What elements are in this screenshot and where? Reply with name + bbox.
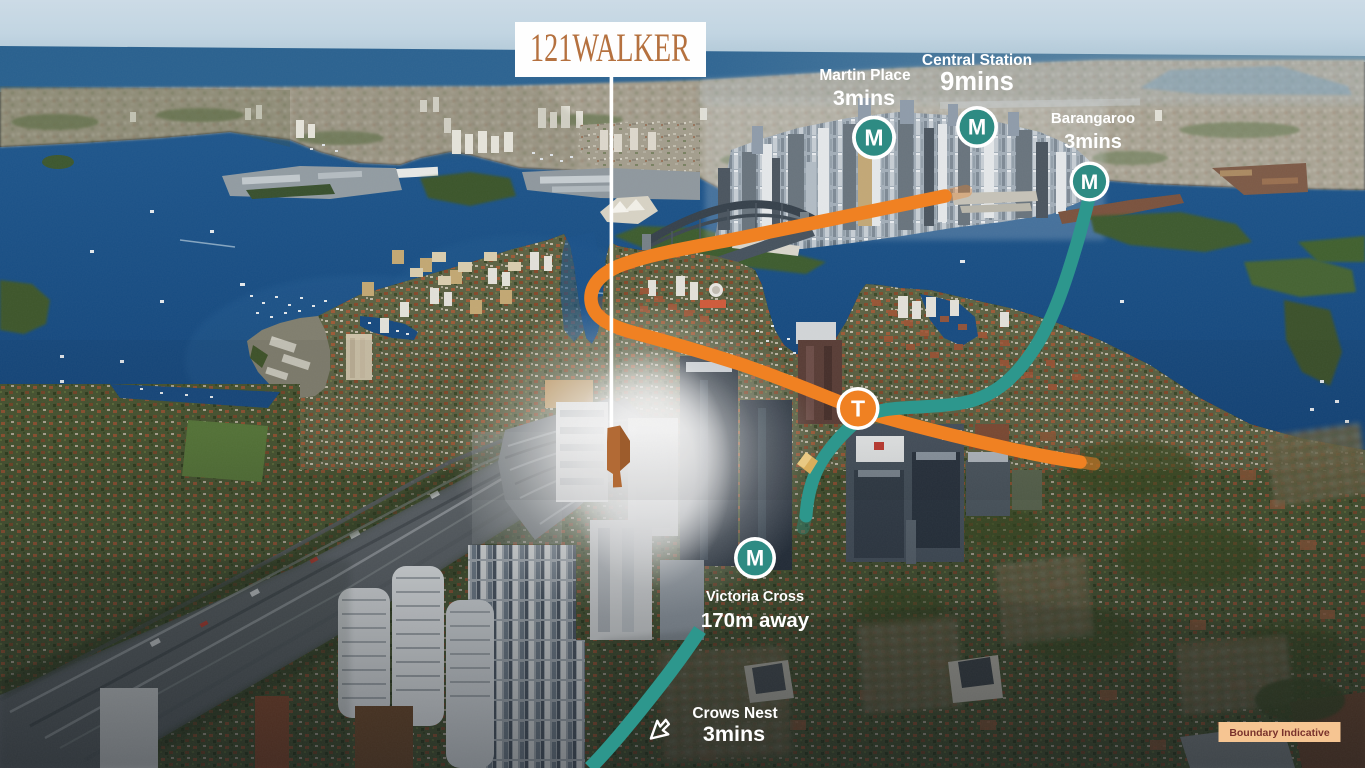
- svg-text:M: M: [746, 546, 764, 571]
- svg-text:3mins: 3mins: [833, 86, 895, 110]
- svg-text:M: M: [968, 115, 986, 140]
- svg-text:Boundary Indicative: Boundary Indicative: [1229, 727, 1330, 739]
- svg-text:121WALKER: 121WALKER: [530, 25, 690, 70]
- svg-text:170m away: 170m away: [701, 609, 810, 632]
- svg-text:Victoria Cross: Victoria Cross: [706, 589, 804, 605]
- svg-text:3mins: 3mins: [1064, 131, 1122, 153]
- svg-text:Martin Place: Martin Place: [819, 67, 911, 84]
- svg-text:3mins: 3mins: [703, 722, 765, 746]
- svg-text:9mins: 9mins: [940, 68, 1014, 96]
- svg-text:Central Station: Central Station: [922, 52, 1032, 69]
- svg-text:Crows Nest: Crows Nest: [692, 705, 777, 722]
- svg-text:T: T: [851, 396, 865, 422]
- svg-text:M: M: [1081, 171, 1099, 194]
- svg-text:M: M: [864, 125, 883, 151]
- svg-text:Barangaroo: Barangaroo: [1051, 110, 1135, 127]
